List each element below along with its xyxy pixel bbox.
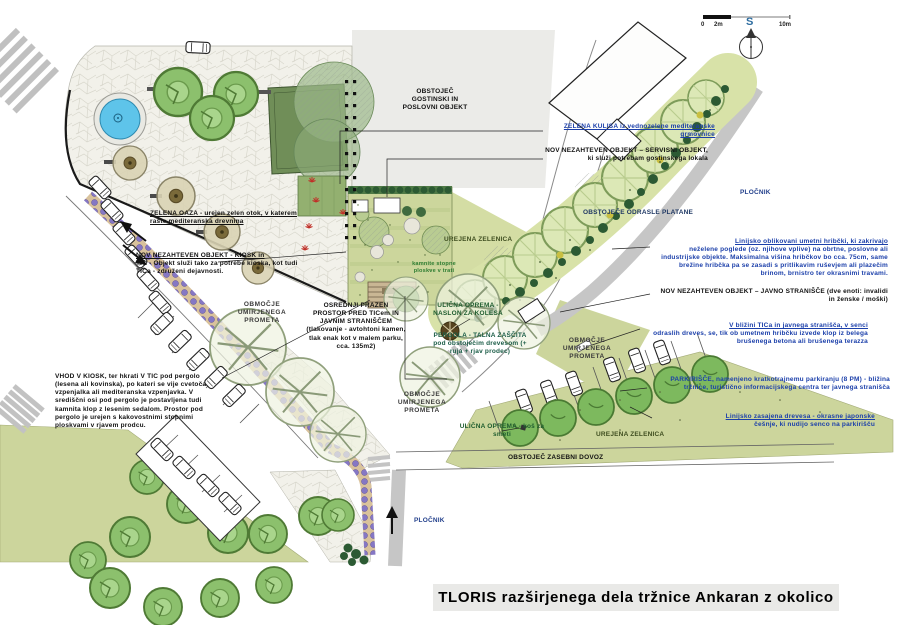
pond-fountain (94, 93, 146, 145)
north-arrow-icon (740, 28, 763, 59)
north-label: S (746, 16, 753, 28)
annotation-kiosk-head: NOV NEZAHTEVEN OBJEKT - KIOSK in (136, 252, 298, 260)
annotation-odrasle-platane: OBSTOJEČE ODRASLE PLATANE (583, 209, 693, 217)
annotation-hribcki-body: neželene poglede (oz. njihove vplive) na… (655, 246, 888, 279)
label-plocnik-bottom: PLOČNIK (414, 517, 445, 525)
label-zasebni-dovoz: OBSTOJEČ ZASEBNI DOVOZ (508, 454, 603, 462)
annotation-zelena-kulisa: ZELENA KULISA iz vednozelene mediteransk… (545, 123, 715, 139)
annotation-naslon-kolesa: ULIČNA OPREMA - NASLON ZA KOLESA (424, 302, 512, 318)
label-urejena-zelenica-right: UREJENA ZELENICA (596, 431, 664, 439)
scale-label-start: 0 (701, 22, 704, 28)
annotation-kos-smeti: ULIČNA OPREMA - koš za smeti (456, 423, 548, 439)
annotation-javno-stranisce: NOV NEZAHTEVEN OBJEKT – JAVNO STRANIŠČE … (655, 288, 888, 304)
label-urejena-zelenica-center: UREJENA ZELENICA (444, 236, 512, 244)
annotation-osrednji-prostor: OSREDNJI PRAZEN PROSTOR PRED TICem IN JA… (306, 302, 406, 351)
annotation-zelena-oaza: ZELENA OAZA - urejen zelen otok, v kater… (150, 210, 300, 226)
label-obmocje-umirjenega-right: OBMOČJE UMIRJENEGA PROMETA (545, 337, 629, 361)
annotation-hribcki-head: Linijsko oblikovani umetni hribčki, ki z… (655, 238, 888, 246)
annotation-cesnje-body: češnje, ki nudijo senco na parkirišču (650, 421, 875, 429)
annotation-obstojec-gostinski: OBSTOJEČ GOSTINSKI IN POSLOVNI OBJEKT (398, 88, 472, 112)
site-plan-canvas: OBSTOJEČ GOSTINSKI IN POSLOVNI OBJEKT ZE… (0, 0, 900, 625)
annotation-klop-body: odraslih dreves, se, tik ob umetnem hrib… (642, 330, 868, 346)
annotation-stopne-ploskve: kamnite stopne ploskve v trati (406, 261, 462, 275)
annotation-parkirisce: PARKIRIŠČE, namenjeno kratkotrajnemu par… (645, 376, 890, 392)
drawing-title: TLORIS razširjenega dela tržnice Ankaran… (433, 584, 839, 611)
annotation-klop-head: V bližini TICa in javnega stranišča, v s… (642, 322, 868, 330)
label-plocnik-top: PLOČNIK (740, 189, 771, 197)
annotation-vhod-kiosk: VHOD V KIOSK, ter hkrati V TIC pod pergo… (55, 373, 223, 430)
label-obmocje-umirjenega-left: OBMOČJE UMIRJENEGA PROMETA (230, 301, 294, 325)
scale-label-end: 10m (779, 22, 791, 28)
label-obmocje-umirjenega-mid: OBMOČJE UMIRJENEGA PROMETA (390, 391, 454, 415)
scale-label-mid: 2m (714, 22, 723, 28)
annotation-cesnje-head: Linijsko zasajena drevesa - okrasne japo… (650, 413, 875, 421)
annotation-pergola-zascita: PERGOLA - TALNA ZAŠČITA pod obstoječim d… (430, 332, 530, 356)
annotation-kiosk-body: TIC - Objekt služi tako za potrebe kiosk… (136, 260, 298, 276)
annotation-servisni-objekt: NOV NEZAHTEVEN OBJEKT – SERVISNI OBJEKT,… (545, 147, 708, 163)
